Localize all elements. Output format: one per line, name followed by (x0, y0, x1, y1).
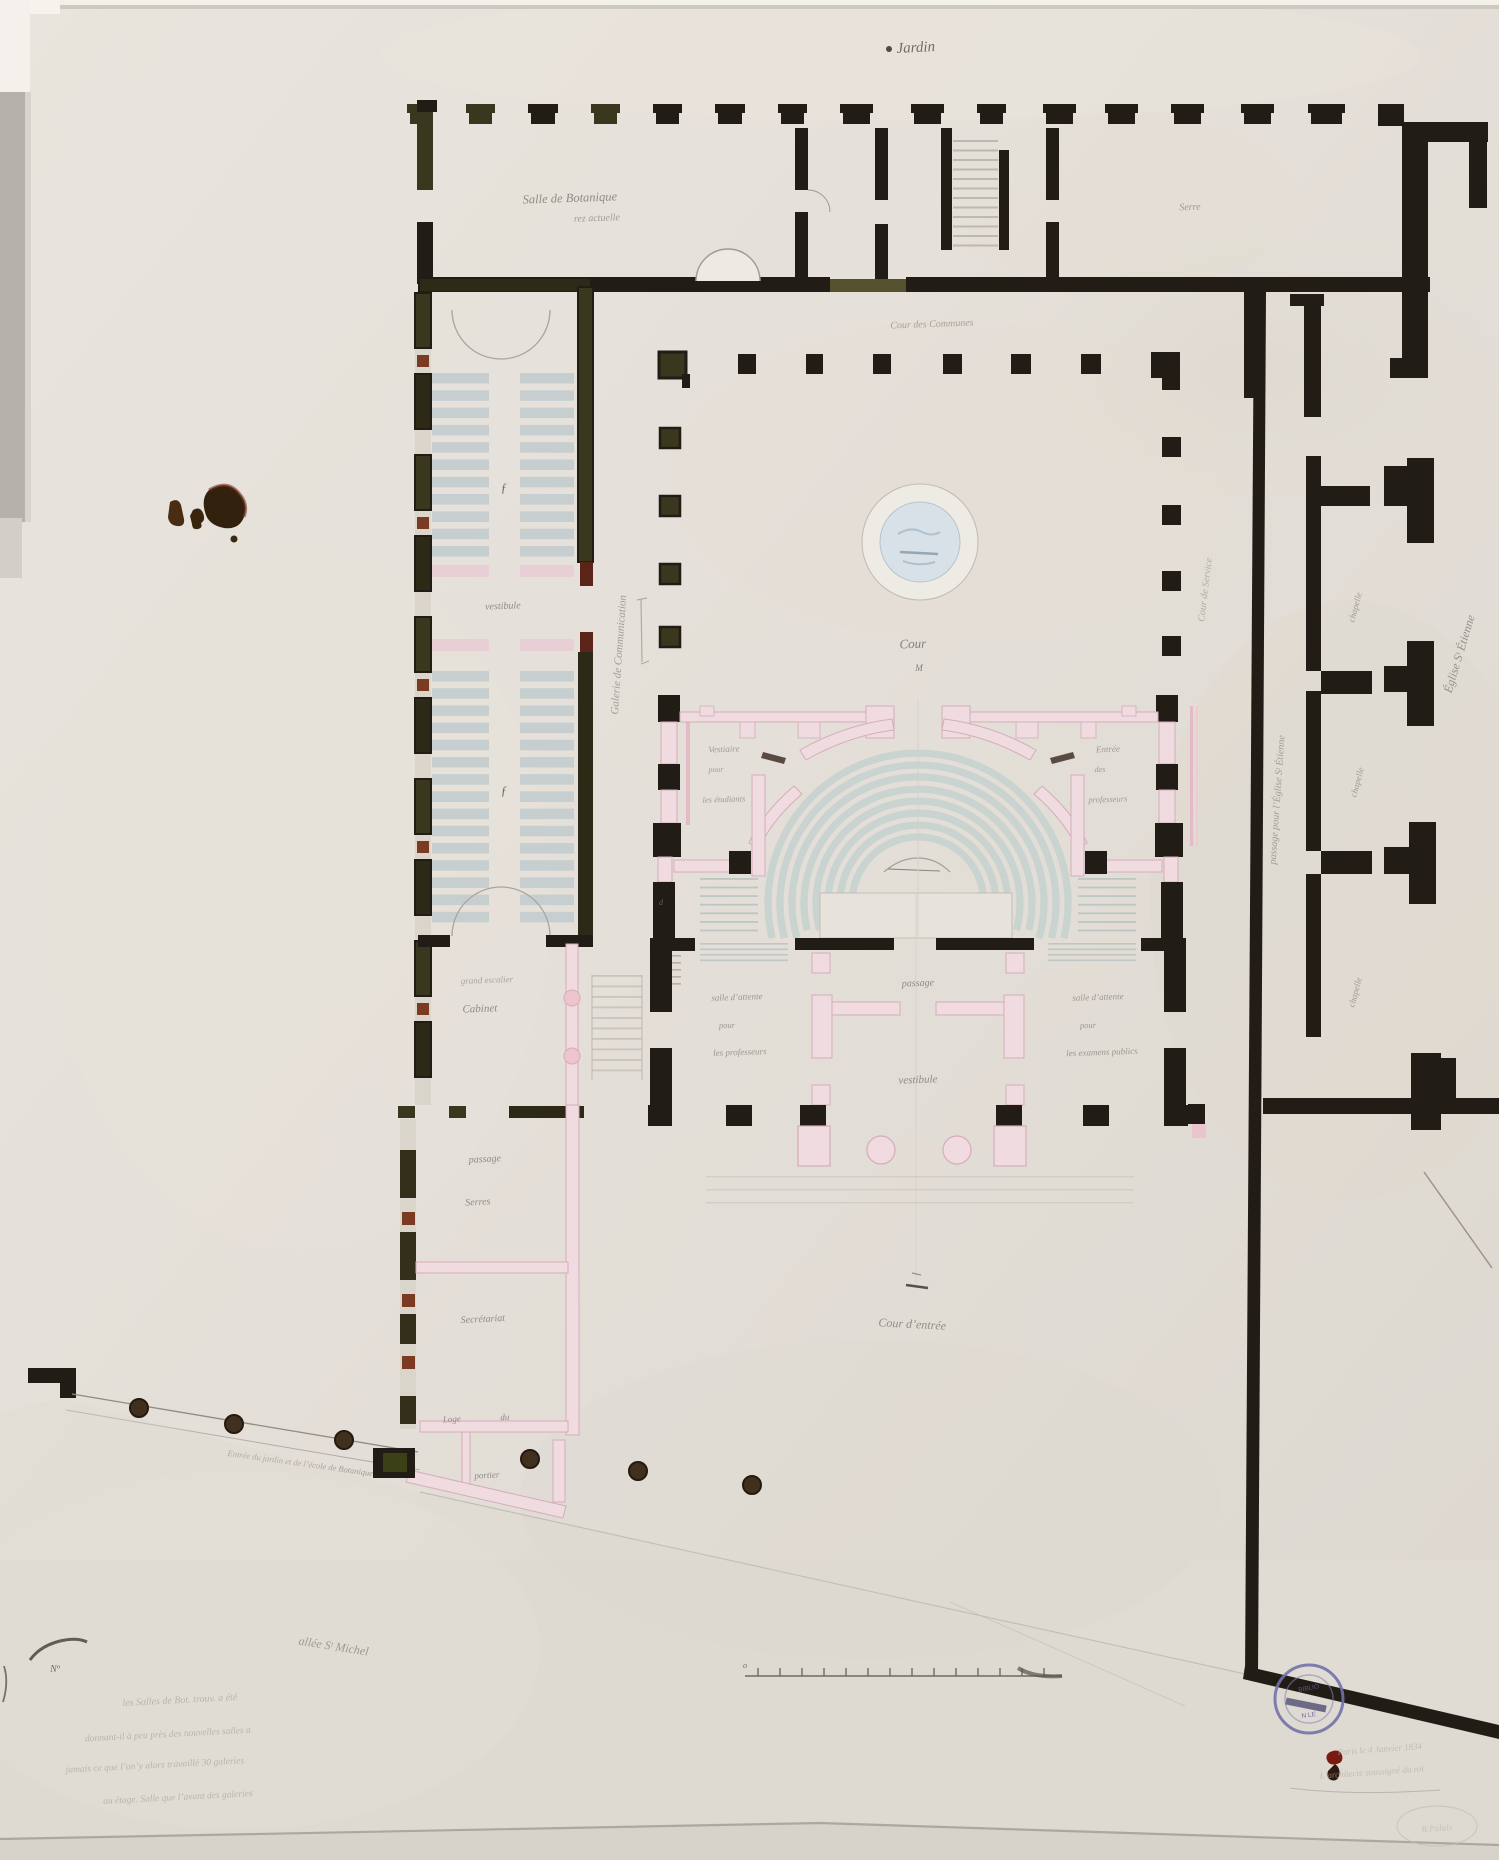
svg-text:o: o (743, 1661, 747, 1670)
svg-text:pour: pour (1079, 1020, 1097, 1031)
svg-text:pour: pour (718, 1020, 736, 1031)
svg-text:Secrétariat: Secrétariat (460, 1313, 505, 1326)
svg-text:Jardin: Jardin (896, 39, 935, 57)
svg-text:Serre: Serre (1179, 202, 1201, 214)
svg-text:les professeurs: les professeurs (713, 1046, 767, 1058)
svg-text:Nº: Nº (49, 1664, 61, 1675)
svg-text:grand escalier: grand escalier (461, 974, 514, 986)
svg-text:ƒ: ƒ (501, 480, 508, 495)
svg-text:pour: pour (707, 765, 724, 775)
svg-text:du: du (500, 1412, 510, 1422)
svg-text:Serres: Serres (465, 1196, 491, 1208)
svg-text:des: des (1094, 765, 1105, 774)
svg-text:Cabinet: Cabinet (462, 1002, 498, 1015)
svg-text:passage: passage (467, 1153, 501, 1166)
svg-text:Vestiaire: Vestiaire (708, 743, 740, 754)
svg-text:Loge: Loge (442, 1414, 462, 1425)
svg-text:vestibule: vestibule (485, 600, 521, 612)
svg-text:Cour: Cour (899, 636, 927, 652)
svg-text:portier: portier (473, 1469, 500, 1480)
svg-text:rez actuelle: rez actuelle (574, 212, 621, 225)
svg-text:M: M (914, 663, 923, 673)
svg-text:les étudiants: les étudiants (702, 793, 746, 805)
svg-text:Entrée: Entrée (1095, 744, 1120, 755)
svg-text:salle d’attente: salle d’attente (1072, 991, 1124, 1003)
svg-text:vestibule: vestibule (898, 1073, 938, 1086)
svg-text:ƒ: ƒ (501, 783, 508, 798)
svg-text:passage: passage (901, 977, 935, 989)
svg-text:professeurs: professeurs (1087, 793, 1128, 804)
svg-text:salle d’attente: salle d’attente (711, 991, 763, 1003)
